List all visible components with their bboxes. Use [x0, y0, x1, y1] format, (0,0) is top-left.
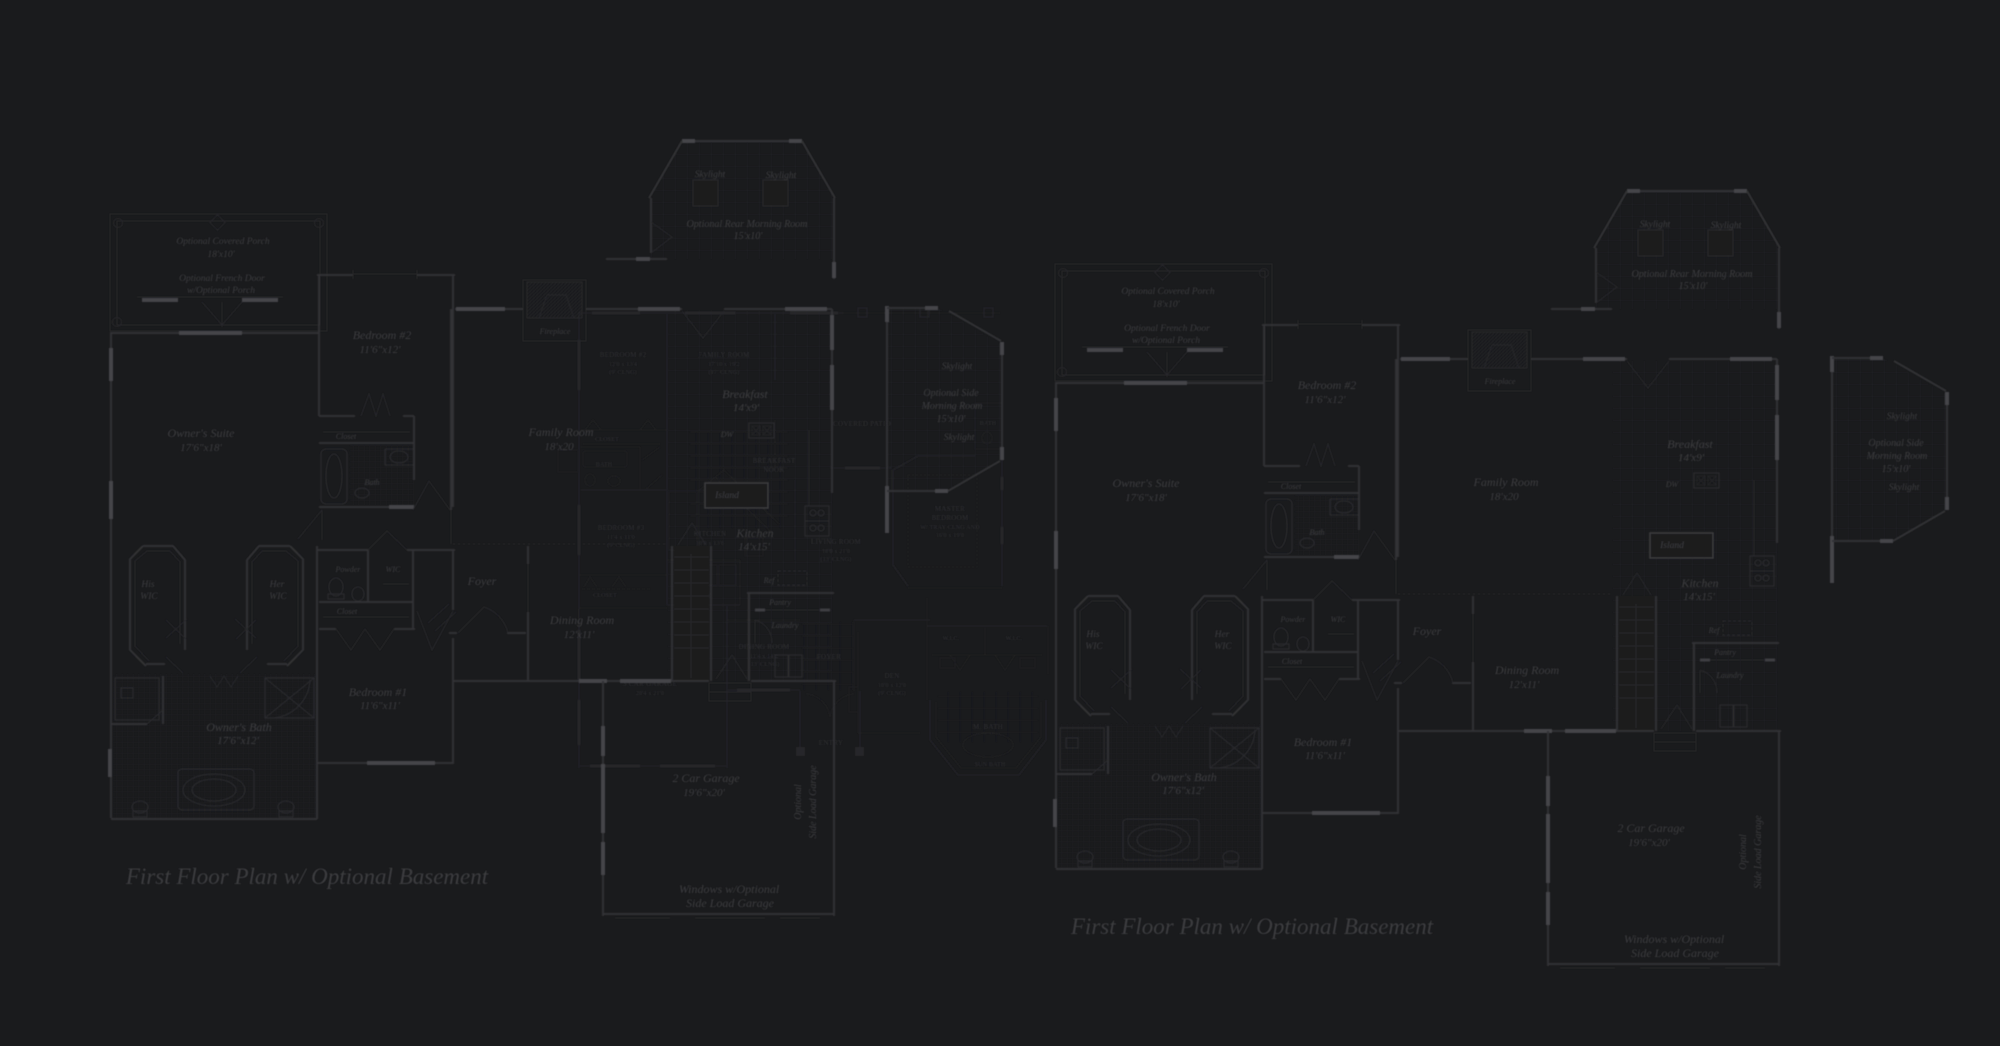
- svg-text:SUN BATH: SUN BATH: [975, 762, 1006, 768]
- svg-text:COVERED PATIO: COVERED PATIO: [833, 420, 891, 428]
- svg-text:10'0 x 12'0: 10'0 x 12'0: [878, 683, 906, 689]
- svg-text:W.I.C.: W.I.C.: [1006, 636, 1023, 642]
- svg-text:CLOSET: CLOSET: [593, 593, 617, 599]
- svg-text:20'4 x 21'0: 20'4 x 21'0: [636, 691, 664, 697]
- svg-text:M. BATH: M. BATH: [973, 723, 1003, 731]
- svg-text:12'0 x 13'4: 12'0 x 13'4: [609, 362, 637, 368]
- svg-text:First Floor Plan w/ Optional: First Floor Plan w/ Optional Basement: [1070, 914, 1434, 939]
- svg-text:(9' CLNG): (9' CLNG): [878, 690, 906, 697]
- svg-text:MASTER: MASTER: [935, 505, 965, 513]
- svg-text:(9' CLNG): (9' CLNG): [607, 542, 635, 549]
- svg-text:BEDROOM: BEDROOM: [931, 514, 969, 522]
- svg-text:CLOSET: CLOSET: [595, 437, 619, 443]
- svg-text:First Floor Plan w/ Optional: First Floor Plan w/ Optional Basement: [125, 864, 489, 889]
- svg-text:(9' CLNG): (9' CLNG): [609, 369, 637, 376]
- svg-text:W/ TRAY CLNG AND: W/ TRAY CLNG AND: [920, 525, 980, 531]
- svg-text:BATH: BATH: [596, 462, 613, 468]
- svg-text:DEN: DEN: [884, 672, 899, 680]
- svg-text:BEDROOM #3: BEDROOM #3: [598, 524, 645, 532]
- svg-text:BEDROOM #2: BEDROOM #2: [600, 351, 647, 359]
- svg-text:16'0 x 19'0: 16'0 x 19'0: [936, 533, 964, 539]
- svg-text:W.I.C.: W.I.C.: [943, 636, 960, 642]
- svg-text:ENTRY: ENTRY: [819, 739, 843, 747]
- svg-text:11'4 x 11'0: 11'4 x 11'0: [607, 535, 635, 541]
